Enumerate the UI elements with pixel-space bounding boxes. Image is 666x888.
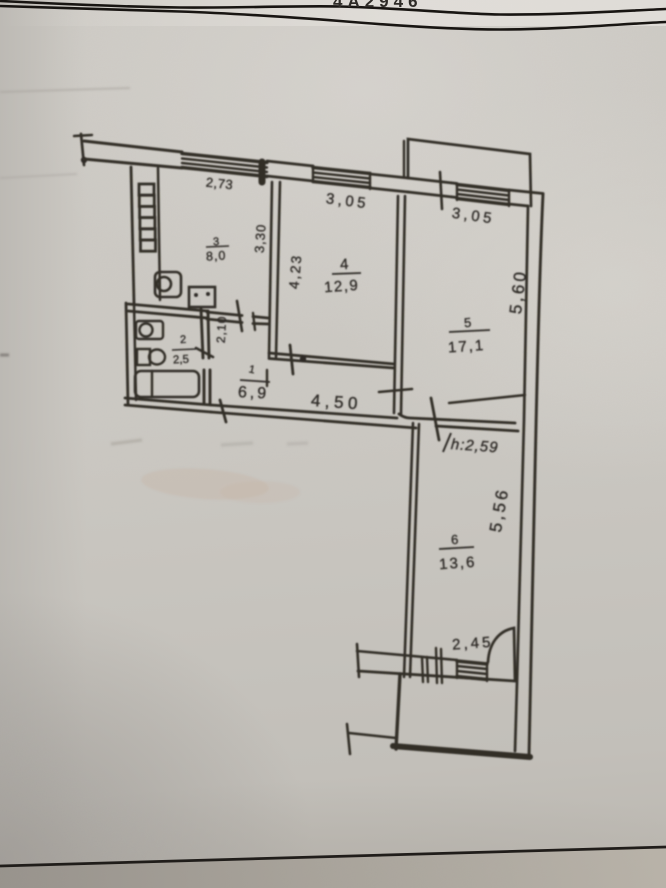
svg-text:4А2946: 4А2946 — [333, 0, 423, 11]
svg-text:6: 6 — [451, 532, 459, 547]
svg-text:2,5: 2,5 — [173, 354, 190, 367]
svg-text:2,45: 2,45 — [452, 634, 494, 654]
svg-text:5: 5 — [464, 315, 472, 330]
svg-text:8,0: 8,0 — [206, 249, 227, 264]
svg-text:13,6: 13,6 — [439, 554, 477, 574]
svg-text:3,30: 3,30 — [252, 223, 269, 253]
svg-text:2,73: 2,73 — [205, 175, 234, 193]
svg-text:12,9: 12,9 — [324, 277, 360, 296]
svg-text:2: 2 — [180, 334, 187, 346]
svg-text:4,50: 4,50 — [310, 391, 362, 414]
svg-text:4: 4 — [339, 256, 349, 274]
svg-text:h:2,59: h:2,59 — [450, 436, 499, 456]
svg-text:6,9: 6,9 — [238, 384, 270, 403]
svg-text:2,10: 2,10 — [214, 315, 229, 343]
svg-text:17,1: 17,1 — [447, 337, 485, 357]
svg-text:4,23: 4,23 — [286, 253, 305, 290]
